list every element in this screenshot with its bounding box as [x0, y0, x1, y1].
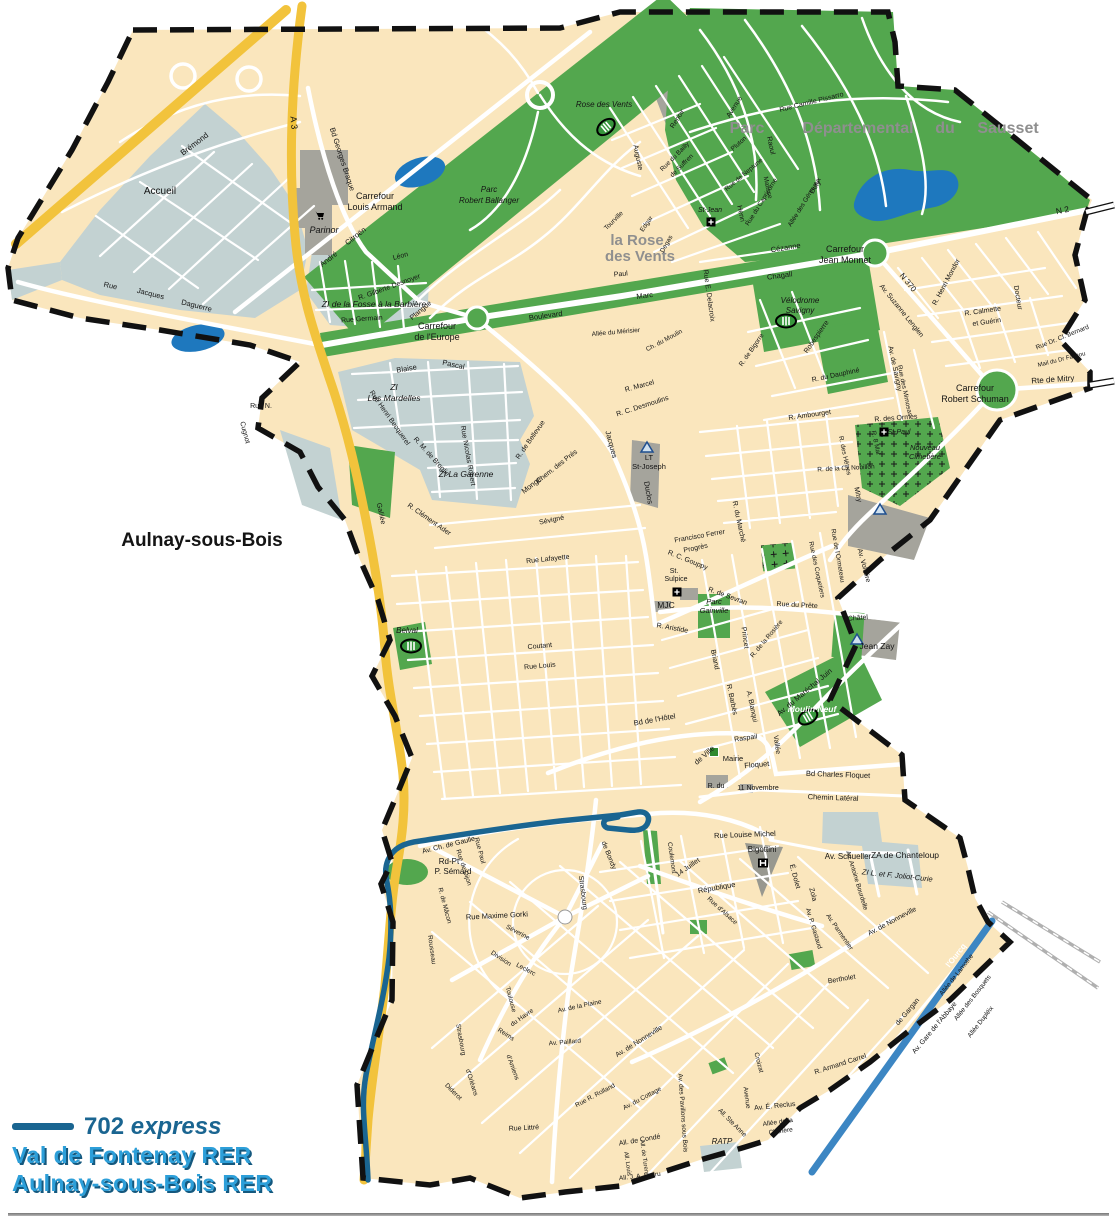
belval-stadium-icon: [401, 640, 421, 653]
map-label: Parc: [730, 120, 765, 137]
legend: 702 express Val de Fontenay RER Aulnay-s…: [12, 1112, 272, 1197]
map-label: RATP: [712, 1137, 733, 1146]
carrefour-europe-roundabout: [466, 307, 488, 329]
map-label: Sausset: [977, 120, 1039, 137]
map-label: A 3: [288, 116, 299, 130]
map-label: Carrefour: [956, 383, 994, 393]
map-label: LT: [645, 453, 654, 462]
map-label: Allée Dupléix: [966, 1004, 995, 1039]
map-label: la Rose: [610, 232, 663, 249]
map-label: Départemental: [802, 120, 913, 137]
map-label: Belval: [396, 626, 418, 635]
map-label: Châtel: [848, 614, 869, 622]
map-label: Bigottini: [748, 845, 777, 854]
map-label: Parc: [706, 597, 722, 606]
st-jean-church-icon: [707, 218, 716, 227]
map-label: Vélodrome: [781, 296, 820, 305]
map-label: Carrefour: [826, 244, 864, 254]
map-label: Robert Schuman: [941, 394, 1009, 404]
map-label: ZI de la Fosse à la Barbière: [321, 299, 427, 309]
gorki-roundabout: [558, 910, 572, 924]
velodrome-savigny-stadium-icon: [776, 315, 796, 328]
exit-roads: [1086, 205, 1114, 385]
map-label: Nouveau: [910, 443, 941, 452]
bigottini-hospital-icon: [758, 859, 768, 868]
map-label: Carrefour: [418, 321, 456, 331]
map-label: Carrefour: [356, 191, 394, 201]
map-label: Jean Monnet: [819, 255, 872, 265]
map-label: Savigny: [786, 306, 815, 315]
map-label: Cimetière: [909, 452, 941, 461]
map-label: MJC: [657, 600, 674, 610]
st-sulpice-church-icon: [673, 588, 682, 597]
map-label: Parc: [481, 185, 497, 194]
map-label: Rue N.: [250, 403, 272, 410]
map-label: 11 Novembre: [737, 785, 779, 792]
map-label: Rose des Vents: [576, 100, 632, 109]
map-canvas: ParcDépartementalduSaussetla Rosedes Ven…: [0, 0, 1117, 1225]
map-label: Cugnot: [238, 421, 251, 445]
map-label: Louis Armand: [347, 202, 402, 212]
map-label: St-Joseph: [632, 462, 666, 471]
map-label: Gainville: [700, 606, 729, 615]
map-label: du: [935, 120, 955, 137]
map-label: ZA de Chanteloup: [871, 850, 939, 860]
map-label: Robert Ballanger: [459, 196, 519, 205]
map-label: Mairie: [723, 754, 743, 763]
map-label: Accueil: [144, 186, 176, 197]
map-label: Sulpice: [665, 576, 688, 583]
map-label: ZI: [389, 382, 398, 392]
map-page: ParcDépartementalduSaussetla Rosedes Ven…: [0, 0, 1117, 1225]
terminus-aulnay-sous-bois: Aulnay-sous-Bois RER: [12, 1169, 272, 1197]
map-label: Aulnay-sous-Bois: [121, 530, 283, 551]
map-label: Jean Zay: [860, 641, 896, 651]
map-label: Parinor: [309, 225, 339, 235]
terminus-val-de-fontenay: Val de Fontenay RER: [12, 1141, 272, 1169]
route-702-legend-line: [12, 1123, 74, 1130]
map-label: de l'Europe: [414, 332, 459, 342]
map-label: St.: [670, 568, 679, 575]
map-label: Chemin Latéral: [808, 792, 859, 803]
map-label: R. du: [708, 783, 725, 790]
route-702-legend-label: 702 express: [84, 1112, 221, 1141]
map-label: St-Jean: [698, 207, 722, 214]
map-label: Paul: [614, 270, 629, 278]
map-label: St-Paul: [888, 429, 911, 436]
bottom-divider: [8, 1213, 1109, 1216]
